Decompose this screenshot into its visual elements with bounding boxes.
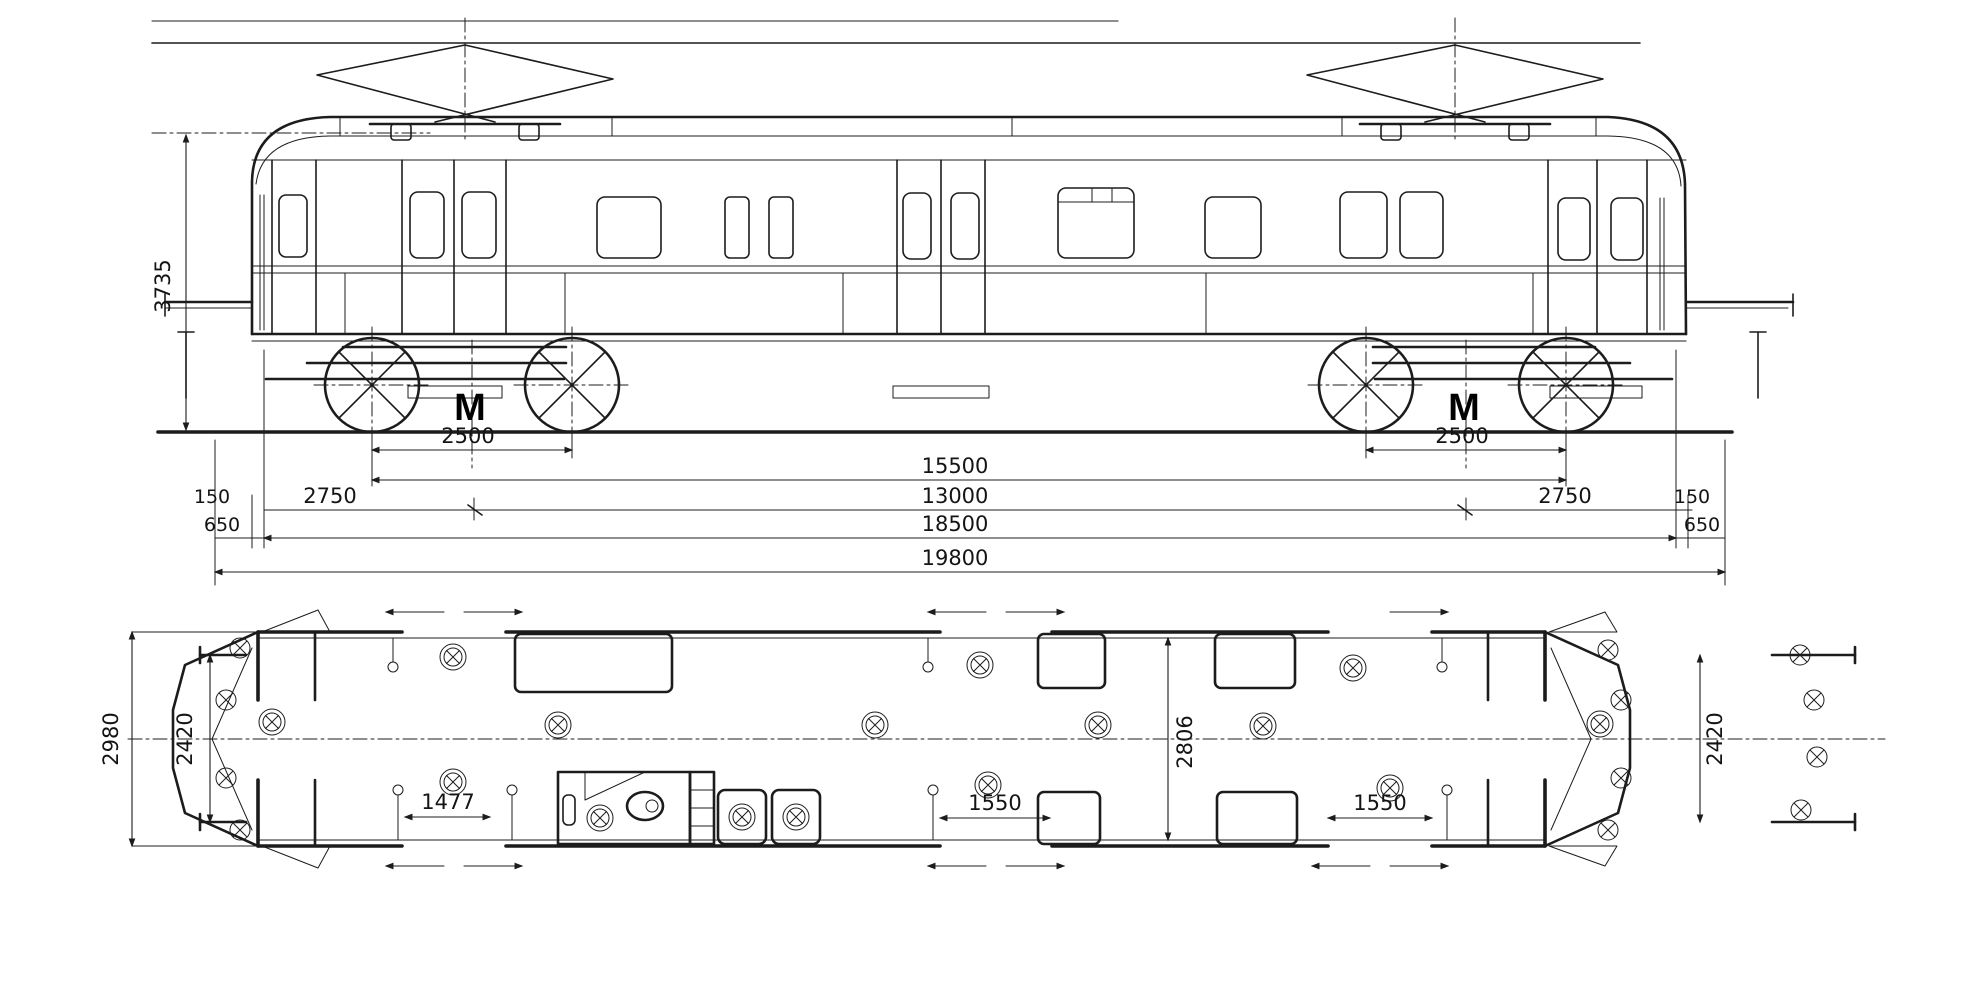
motor-bogie-mark-left: M xyxy=(454,387,486,429)
dim-headstock-right: 150 xyxy=(1674,486,1710,508)
wheel xyxy=(314,327,430,443)
door-step xyxy=(893,386,989,398)
side-dimensions: 3735 2500 2500 15500 150 xyxy=(151,133,1725,585)
dim-axle-base-right: 2500 xyxy=(1435,424,1488,448)
wheel xyxy=(514,327,630,443)
seat-block xyxy=(1215,634,1295,688)
pantograph-left xyxy=(317,18,613,142)
wheel xyxy=(1508,327,1624,443)
dim-buffer-right: 650 xyxy=(1684,514,1720,536)
headlight-left xyxy=(259,709,285,735)
floor-plan: 2980 2420 2420 2806 1477 1550 1550 xyxy=(99,610,1885,868)
dim-buffer-left: 650 xyxy=(204,514,240,536)
saloon-window xyxy=(769,197,793,258)
motor-bogie-mark-right: M xyxy=(1448,387,1480,429)
door-window xyxy=(1558,198,1590,260)
dim-total-length: 19800 xyxy=(922,546,989,570)
dim-door-right: 1550 xyxy=(1353,791,1406,815)
dim-axle-base-left: 2500 xyxy=(441,424,494,448)
headlight-right xyxy=(1587,711,1613,737)
saloon-window xyxy=(725,197,749,258)
dim-overall-width: 2980 xyxy=(99,712,123,765)
door-window xyxy=(951,193,979,259)
cab-window-left xyxy=(279,195,307,257)
door-window xyxy=(462,192,496,258)
seat-block xyxy=(1038,634,1105,688)
dim-bogie-centres: 13000 xyxy=(922,484,989,508)
railcar-drawing: M M 3735 xyxy=(0,0,1972,1000)
wheel xyxy=(1308,327,1424,443)
dim-body-length: 18500 xyxy=(922,512,989,536)
carbody-outline xyxy=(252,117,1686,341)
dim-door-centre: 1550 xyxy=(968,791,1021,815)
saloon-window xyxy=(1340,192,1387,258)
saloon-window xyxy=(1400,192,1443,258)
dim-overhang-right: 2750 xyxy=(1538,484,1591,508)
underframe xyxy=(165,294,1793,398)
blueprint-canvas: M M 3735 xyxy=(0,0,1972,1000)
entrance-steps xyxy=(690,772,714,844)
saloon-window xyxy=(1205,197,1261,258)
dim-height: 3735 xyxy=(151,259,175,312)
side-elevation: M M 3735 xyxy=(151,18,1793,585)
door-window xyxy=(1611,198,1643,260)
dim-body-width: 2806 xyxy=(1173,715,1197,768)
door-window xyxy=(903,193,931,259)
dim-headstock-left: 150 xyxy=(194,486,230,508)
dim-overhang-left: 2750 xyxy=(303,484,356,508)
vent-window xyxy=(1058,188,1134,258)
toilet-compartment xyxy=(558,772,690,844)
door-window xyxy=(410,192,444,258)
dim-end-width-right: 2420 xyxy=(1703,712,1727,765)
dim-door-left: 1477 xyxy=(421,790,474,814)
dim-end-width-left: 2420 xyxy=(173,712,197,765)
seat-block xyxy=(1217,792,1297,844)
luggage-rack xyxy=(515,634,672,692)
pantograph-right xyxy=(1307,18,1603,142)
saloon-window xyxy=(597,197,661,258)
catenary-wires xyxy=(152,21,1640,43)
dim-outer-axles: 15500 xyxy=(922,454,989,478)
